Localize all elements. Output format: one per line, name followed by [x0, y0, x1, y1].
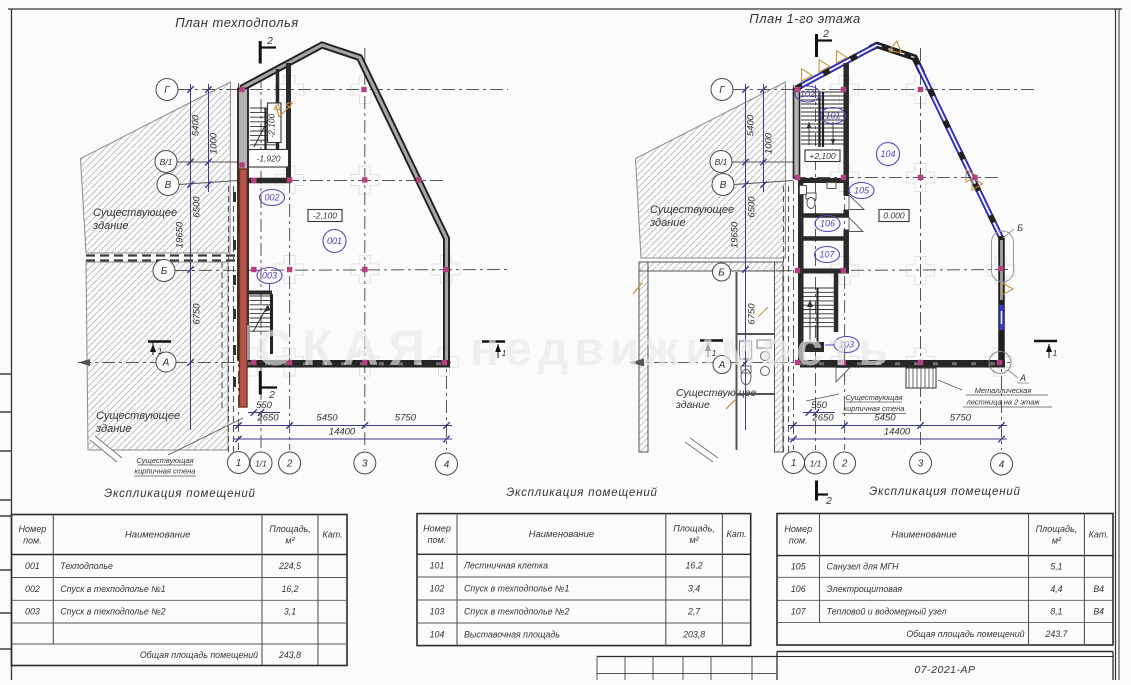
svg-text:1/1: 1/1 — [255, 459, 267, 469]
svg-text:Спуск в техподполье №2: Спуск в техподполье №2 — [60, 607, 165, 617]
svg-text:5,1: 5,1 — [1050, 561, 1062, 571]
svg-text:Экспликация помещений: Экспликация помещений — [104, 488, 255, 500]
svg-text:2: 2 — [841, 459, 848, 470]
svg-text:2: 2 — [286, 459, 293, 470]
svg-text:В/1: В/1 — [160, 157, 173, 167]
svg-text:недвижимость: недвижимость — [470, 323, 894, 376]
svg-text:102: 102 — [430, 584, 445, 594]
svg-text:5400: 5400 — [746, 114, 757, 136]
svg-text:Техподполье: Техподполье — [60, 561, 113, 571]
svg-text:5750: 5750 — [950, 413, 972, 424]
svg-text:Б: Б — [1017, 223, 1023, 233]
svg-text:Выставочная площадь: Выставочная площадь — [464, 629, 560, 639]
svg-text:001: 001 — [327, 236, 342, 246]
svg-text:101: 101 — [825, 111, 840, 121]
svg-text:1/1: 1/1 — [810, 459, 822, 469]
svg-text:550: 550 — [811, 400, 828, 411]
svg-text:002: 002 — [264, 193, 279, 203]
svg-text:лестница на 2 этаж: лестница на 2 этаж — [965, 398, 1040, 407]
svg-text:1: 1 — [236, 458, 242, 469]
svg-text:105: 105 — [791, 561, 806, 571]
svg-text:-2,100: -2,100 — [313, 211, 337, 221]
svg-text:1: 1 — [158, 346, 163, 356]
svg-text:14400: 14400 — [884, 427, 911, 438]
svg-text:А: А — [162, 358, 170, 369]
svg-text:106: 106 — [820, 219, 835, 229]
svg-text:Электрощитовая: Электрощитовая — [827, 584, 903, 594]
svg-text:В4: В4 — [1093, 606, 1104, 616]
svg-text:здание: здание — [95, 423, 131, 435]
svg-text:Лестничная клетка: Лестничная клетка — [463, 561, 548, 571]
svg-text:В/1: В/1 — [715, 157, 728, 167]
svg-text:6750: 6750 — [192, 303, 203, 325]
svg-text:Металлическая: Металлическая — [975, 386, 1032, 395]
svg-text:здание: здание — [649, 217, 685, 229]
svg-text:5450: 5450 — [316, 413, 338, 424]
svg-text:СКАЯ: СКАЯ — [256, 320, 435, 376]
svg-text:Спуск в техподполье №1: Спуск в техподполье №1 — [464, 584, 569, 594]
svg-text:2650: 2650 — [256, 413, 279, 424]
svg-text:План техподполья: План техподполья — [175, 15, 299, 30]
svg-text:4: 4 — [999, 460, 1005, 471]
svg-text:1: 1 — [1053, 348, 1058, 358]
svg-text:102: 102 — [800, 89, 815, 99]
svg-text:План 1-го этажа: План 1-го этажа — [749, 11, 860, 26]
svg-text:Б: Б — [161, 266, 168, 277]
svg-text:003: 003 — [262, 271, 277, 281]
svg-text:пом.: пом. — [23, 536, 42, 546]
svg-text:2: 2 — [822, 29, 829, 40]
svg-text:Наименование: Наименование — [891, 530, 957, 541]
svg-text:2,7: 2,7 — [687, 607, 701, 617]
svg-text:м²: м² — [690, 535, 700, 545]
svg-text:пом.: пом. — [789, 536, 808, 546]
svg-text:Существующее: Существующее — [93, 207, 177, 219]
svg-text:16,2: 16,2 — [686, 561, 703, 571]
svg-text:Номер: Номер — [19, 524, 47, 534]
svg-text:003: 003 — [25, 607, 40, 617]
svg-text:243.8: 243.8 — [278, 650, 301, 660]
svg-text:224,5: 224,5 — [278, 561, 301, 571]
svg-text:3: 3 — [362, 459, 368, 470]
svg-text:19650: 19650 — [730, 221, 741, 248]
svg-text:-2,100: -2,100 — [266, 113, 276, 137]
svg-text:В: В — [165, 180, 172, 191]
svg-text:3,1: 3,1 — [284, 607, 296, 617]
svg-text:203,8: 203,8 — [682, 629, 705, 639]
svg-text:6750: 6750 — [747, 303, 758, 325]
svg-text:4: 4 — [444, 460, 450, 471]
svg-text:Площадь,: Площадь, — [1036, 524, 1078, 534]
svg-text:1: 1 — [791, 458, 797, 469]
svg-text:Существующее: Существующее — [650, 204, 734, 216]
svg-text:16,2: 16,2 — [281, 584, 298, 594]
svg-text:2: 2 — [266, 36, 273, 47]
svg-text:-1,920: -1,920 — [256, 153, 280, 163]
svg-text:В4: В4 — [1093, 584, 1104, 594]
svg-text:Существующая: Существующая — [845, 393, 902, 402]
svg-text:Тепловой и водомерный узел: Тепловой и водомерный узел — [827, 606, 947, 616]
svg-text:19650: 19650 — [175, 221, 186, 248]
svg-text:2650: 2650 — [811, 413, 834, 424]
svg-text:5750: 5750 — [395, 413, 417, 424]
svg-text:кирпичная стена: кирпичная стена — [135, 467, 196, 476]
svg-text:Номер: Номер — [784, 524, 812, 534]
svg-text:105: 105 — [854, 186, 870, 196]
svg-text:Общая площадь помещений: Общая площадь помещений — [906, 629, 1024, 639]
svg-text:Существующая: Существующая — [136, 456, 193, 465]
svg-text:5400: 5400 — [191, 114, 202, 136]
svg-text:Площадь,: Площадь, — [269, 524, 311, 534]
svg-text:Общая площадь помещений: Общая площадь помещений — [140, 650, 258, 660]
svg-text:А: А — [1019, 373, 1026, 383]
svg-text:104: 104 — [880, 149, 895, 159]
svg-text:1000: 1000 — [209, 132, 220, 154]
svg-text:4,4: 4,4 — [1050, 584, 1062, 594]
svg-text:Спуск в техподполье №1: Спуск в техподполье №1 — [60, 584, 165, 594]
svg-text:+2,100: +2,100 — [809, 151, 836, 161]
svg-text:2: 2 — [825, 496, 832, 507]
svg-text:В: В — [720, 180, 727, 191]
svg-text:здание: здание — [675, 399, 710, 411]
svg-text:550: 550 — [256, 400, 273, 411]
svg-text:Кат.: Кат. — [322, 530, 342, 540]
svg-text:Б: Б — [718, 268, 725, 279]
svg-text:3: 3 — [918, 459, 924, 470]
svg-text:Экспликация помещений: Экспликация помещений — [506, 487, 657, 499]
svg-text:м²: м² — [285, 536, 295, 546]
svg-text:106: 106 — [791, 584, 806, 594]
svg-text:6500: 6500 — [192, 196, 203, 218]
svg-text:104: 104 — [430, 629, 445, 639]
svg-text:Номер: Номер — [423, 523, 451, 533]
svg-text:2: 2 — [268, 390, 275, 401]
svg-text:Спуск в техподполье №2: Спуск в техподполье №2 — [464, 607, 569, 617]
svg-text:Существующее: Существующее — [96, 410, 180, 422]
svg-text:кирпичная стена: кирпичная стена — [844, 404, 905, 413]
svg-text:здание: здание — [92, 220, 128, 232]
svg-text:1000: 1000 — [764, 132, 775, 154]
svg-text:0.000: 0.000 — [883, 211, 905, 221]
svg-text:Наименование: Наименование — [529, 529, 595, 540]
svg-text:8,1: 8,1 — [1050, 606, 1062, 616]
svg-text:Санузел для МГН: Санузел для МГН — [827, 561, 900, 571]
svg-text:107: 107 — [791, 606, 807, 616]
svg-text:Экспликация помещений: Экспликация помещений — [869, 486, 1020, 498]
svg-text:243.7: 243.7 — [1044, 629, 1068, 639]
svg-text:002: 002 — [25, 584, 40, 594]
svg-text:3,4: 3,4 — [688, 584, 700, 594]
svg-text:Наименование: Наименование — [125, 530, 191, 541]
svg-text:пом.: пом. — [428, 535, 447, 545]
svg-text:101: 101 — [430, 561, 445, 571]
svg-text:Кат.: Кат. — [1089, 530, 1109, 540]
svg-text:Кат.: Кат. — [726, 529, 746, 539]
svg-text:14400: 14400 — [329, 427, 356, 438]
svg-text:103: 103 — [430, 607, 445, 617]
svg-text:07-2021-АР: 07-2021-АР — [914, 664, 975, 676]
svg-text:107: 107 — [819, 250, 835, 260]
svg-text:м²: м² — [1052, 536, 1062, 546]
svg-text:6500: 6500 — [747, 196, 758, 218]
svg-text:Площадь,: Площадь, — [673, 523, 715, 533]
svg-text:001: 001 — [25, 561, 40, 571]
svg-text:5450: 5450 — [874, 413, 896, 424]
